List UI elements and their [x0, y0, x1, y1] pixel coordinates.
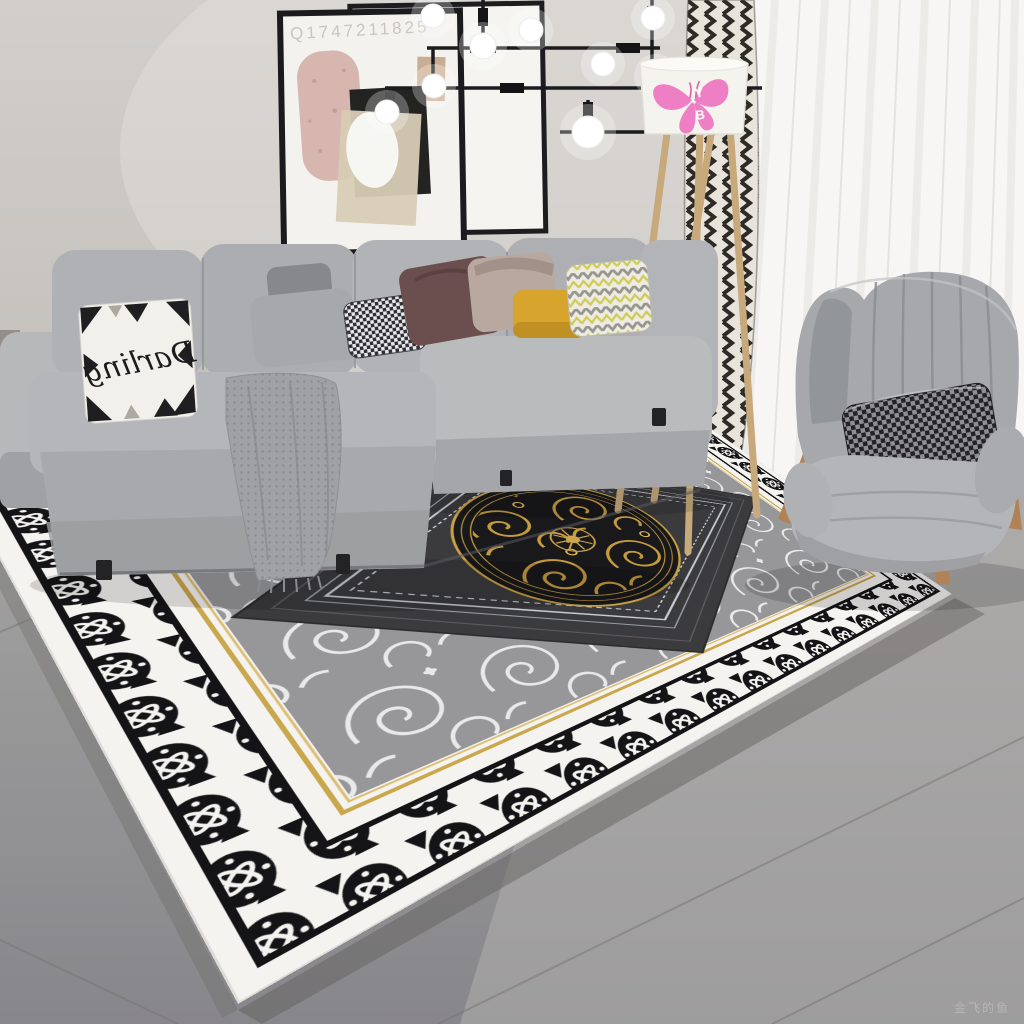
living-room-photo: Q1747211825: [0, 0, 1024, 1024]
photo-watermark: 金飞的鱼: [954, 999, 1010, 1016]
